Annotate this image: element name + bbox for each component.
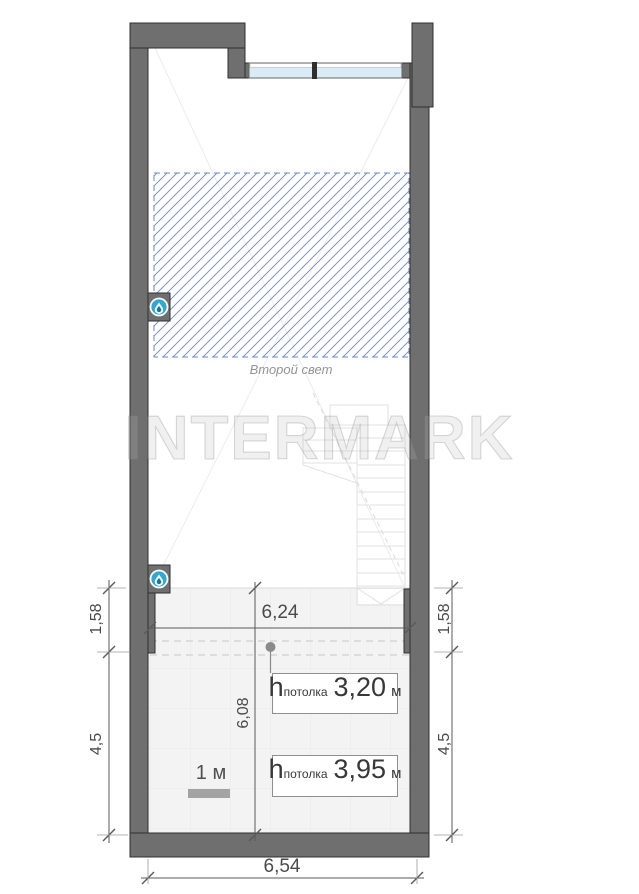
dimension-right-lower: 4,5 bbox=[436, 714, 454, 774]
ceiling-height-box-upper: hпотолка3,20м bbox=[272, 673, 398, 714]
floor-plan: Второй свет 6,24 6,54 1,58 4,5 1,58 4,5 … bbox=[0, 0, 639, 894]
second-light-label: Второй свет bbox=[226, 362, 356, 377]
wall-step-left bbox=[148, 589, 155, 653]
window-mullion bbox=[312, 62, 317, 79]
ceiling-height-value: 3,20 bbox=[334, 674, 387, 701]
scale-label: 1 м bbox=[180, 762, 242, 785]
dimension-width-bottom: 6,54 bbox=[232, 856, 332, 878]
ceiling-height-symbol: h bbox=[269, 756, 284, 783]
dimension-right-upper: 1,58 bbox=[436, 589, 454, 649]
window bbox=[249, 62, 402, 79]
void-hatch-area bbox=[154, 173, 409, 357]
wall-top bbox=[130, 23, 245, 48]
ceiling-height-subscript: потолка bbox=[284, 685, 328, 699]
ceiling-height-unit: м bbox=[391, 683, 401, 700]
ceiling-height-unit: м bbox=[391, 765, 401, 782]
water-drop-marker-upper bbox=[148, 293, 170, 321]
wall-right bbox=[410, 63, 429, 857]
dimension-width-upper: 6,24 bbox=[230, 602, 330, 624]
dimension-depth-lower-zone: 6,08 bbox=[235, 683, 253, 743]
staircase bbox=[303, 393, 405, 605]
wall-bottom bbox=[130, 833, 429, 857]
ceiling-height-subscript: потолка bbox=[284, 767, 328, 781]
dimension-left-lower: 4,5 bbox=[88, 714, 106, 774]
water-drop-marker-lower bbox=[148, 565, 170, 593]
wall-left bbox=[130, 23, 148, 857]
scale-bar bbox=[188, 789, 230, 798]
ceiling-height-value: 3,95 bbox=[334, 756, 387, 783]
ceiling-height-symbol: h bbox=[269, 674, 284, 701]
dimension-left-upper: 1,58 bbox=[88, 589, 106, 649]
wall-top-step bbox=[228, 48, 245, 78]
wall-top-right-block bbox=[412, 23, 433, 107]
ceiling-height-box-lower: hпотолка3,95м bbox=[272, 755, 398, 797]
